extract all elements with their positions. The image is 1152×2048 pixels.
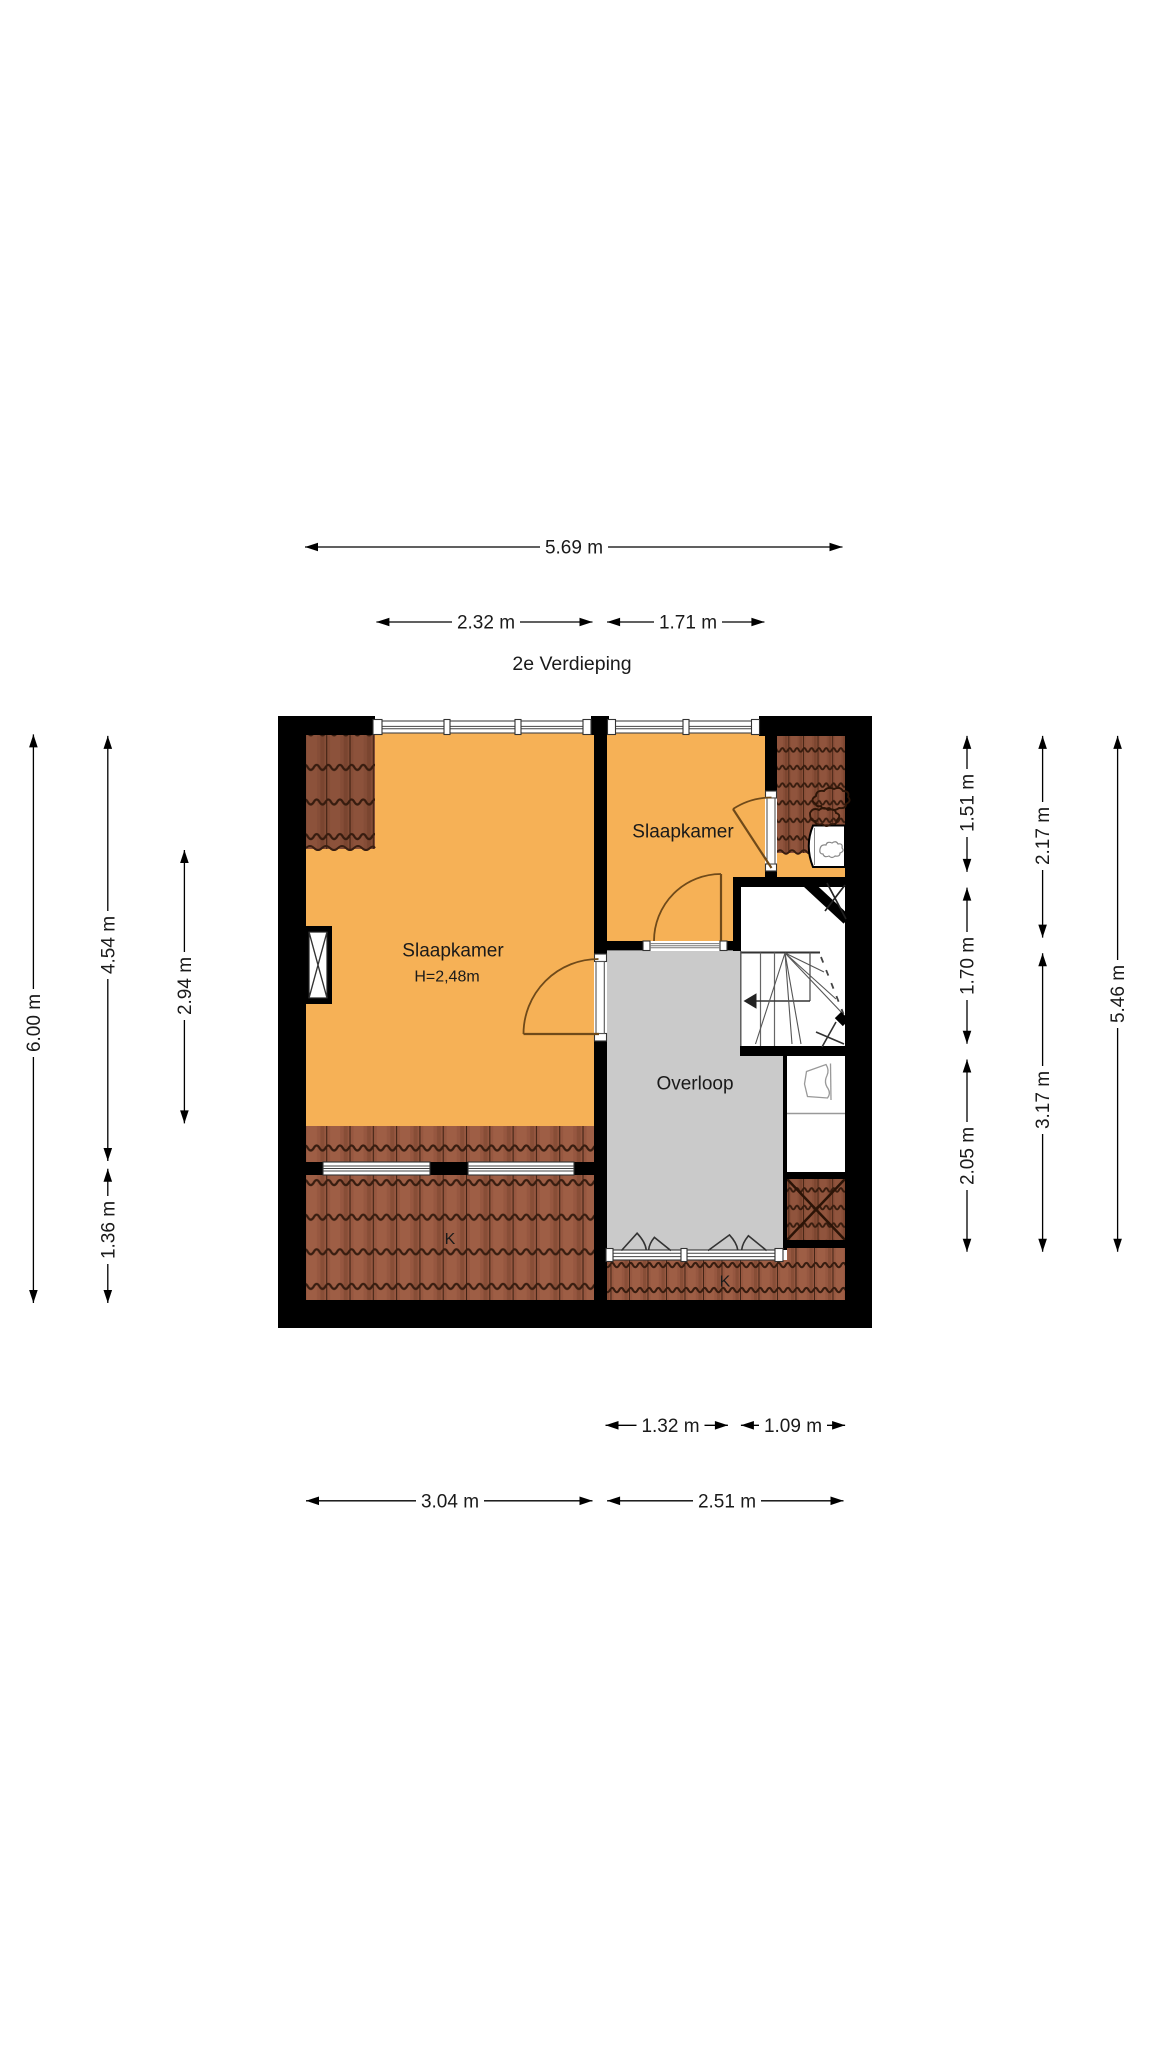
svg-text:1.09 m: 1.09 m [764,1416,822,1437]
svg-text:1.71 m: 1.71 m [659,613,717,634]
svg-text:2.05 m: 2.05 m [958,1127,979,1185]
svg-text:Slaapkamer: Slaapkamer [402,941,504,962]
svg-text:3.04 m: 3.04 m [421,1491,479,1512]
svg-text:Slaapkamer: Slaapkamer [632,822,734,843]
svg-text:K: K [445,1231,456,1248]
svg-text:5.46 m: 5.46 m [1108,965,1129,1023]
svg-text:2.94 m: 2.94 m [175,957,196,1015]
svg-text:K: K [720,1274,731,1291]
svg-text:1.36 m: 1.36 m [98,1201,119,1259]
svg-text:3.17 m: 3.17 m [1033,1071,1054,1129]
svg-text:2.17 m: 2.17 m [1033,807,1054,865]
svg-text:2e Verdieping: 2e Verdieping [512,653,631,675]
svg-text:4.54 m: 4.54 m [98,916,119,974]
svg-text:1.32 m: 1.32 m [641,1416,699,1437]
svg-text:2.51 m: 2.51 m [698,1491,756,1512]
svg-text:6.00 m: 6.00 m [24,994,45,1052]
svg-text:H=2,48m: H=2,48m [414,969,479,986]
svg-text:1.70 m: 1.70 m [958,937,979,995]
svg-text:Overloop: Overloop [656,1074,733,1095]
svg-text:2.32 m: 2.32 m [457,613,515,634]
svg-text:5.69 m: 5.69 m [545,538,603,559]
svg-text:1.51 m: 1.51 m [958,774,979,832]
